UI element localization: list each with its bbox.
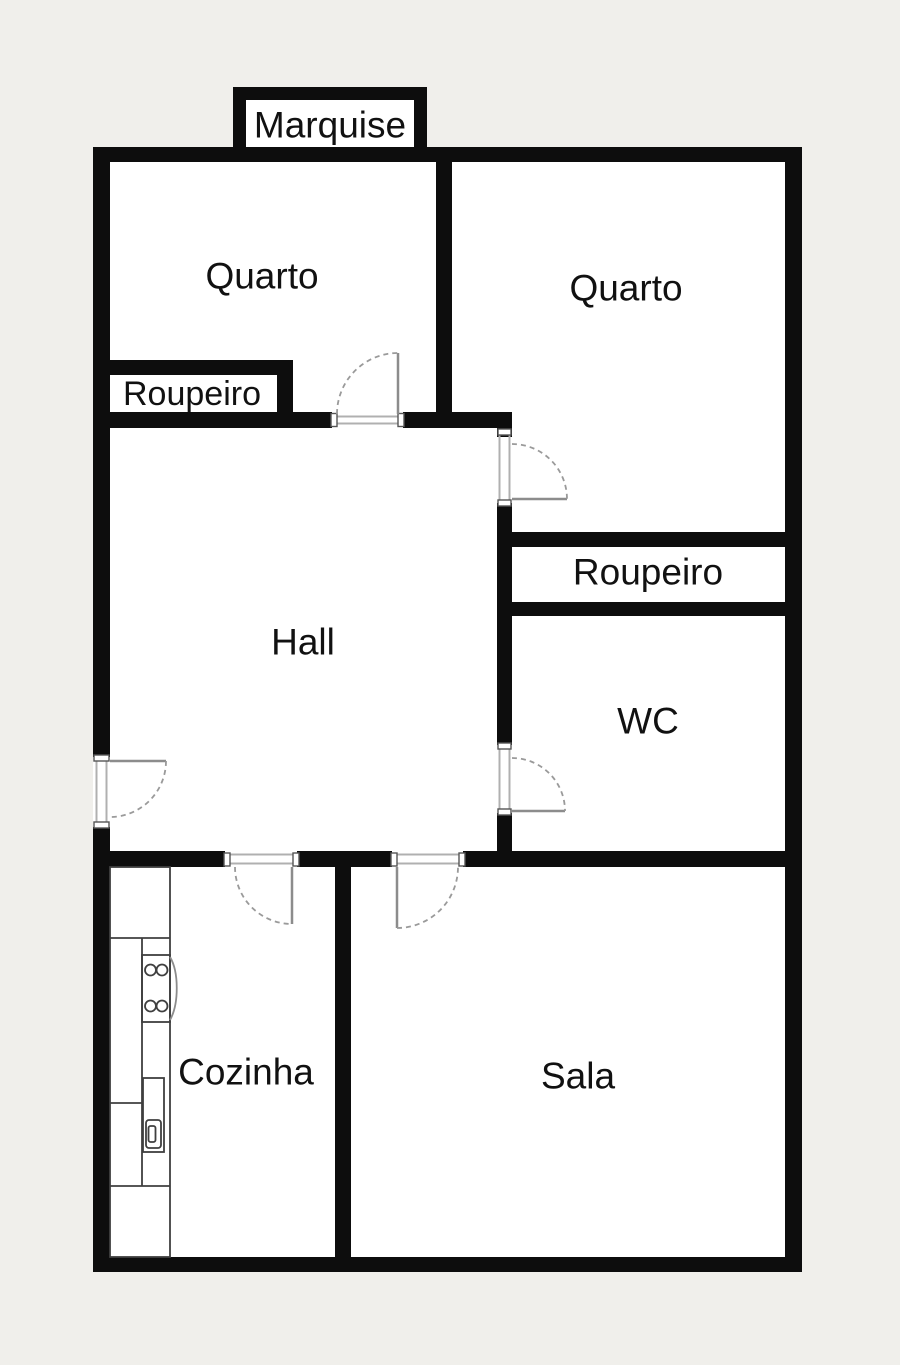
room-label-roupeiro-right: Roupeiro: [573, 554, 723, 591]
room-label-wc: WC: [617, 703, 679, 740]
room-label-cozinha: Cozinha: [178, 1054, 314, 1091]
kitchen-counter: [110, 867, 177, 1257]
floor-plan-drawing: [0, 0, 900, 1365]
room-label-quarto-left: Quarto: [205, 258, 318, 295]
room-label-quarto-right: Quarto: [569, 270, 682, 307]
floor-plan-page: Marquise Quarto Quarto Roupeiro Hall Rou…: [0, 0, 900, 1365]
room-label-roupeiro-left: Roupeiro: [123, 377, 261, 411]
room-label-hall: Hall: [271, 624, 335, 661]
room-label-marquise: Marquise: [254, 107, 406, 144]
room-label-sala: Sala: [541, 1058, 615, 1095]
